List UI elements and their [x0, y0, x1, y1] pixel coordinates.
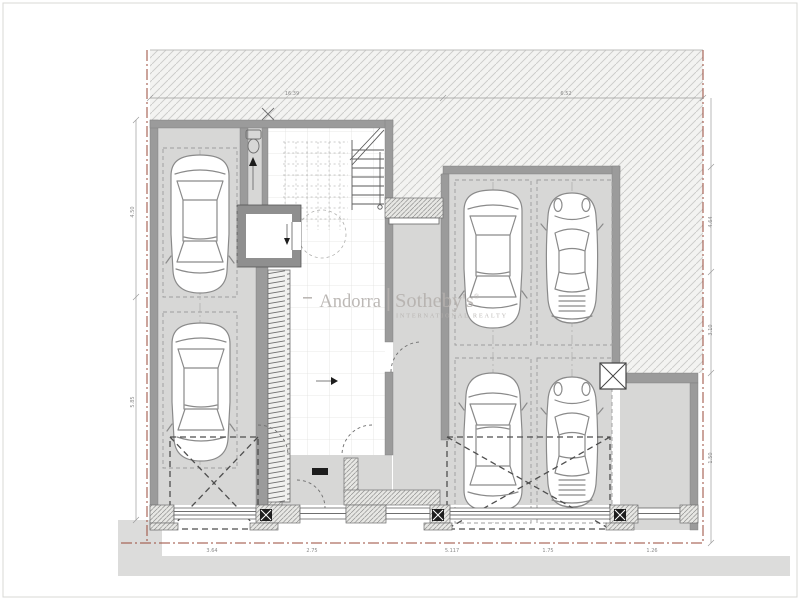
- watermark-tagline: INTERNATIONAL REALTY: [396, 313, 508, 320]
- car-4-sports: [541, 193, 603, 323]
- dimension-label: 16.39: [285, 91, 299, 97]
- car-5-sedan: [459, 373, 527, 511]
- dimension-label: 1.50: [708, 452, 714, 463]
- dimension-label: 6.52: [560, 91, 571, 97]
- dimension-label: 3.10: [708, 324, 714, 335]
- dimension-label: 4.50: [130, 206, 136, 217]
- floor-plan-page: 16.396.523.642.755.1171.751.264.505.854.…: [0, 0, 800, 600]
- dimension-label: 5.85: [130, 396, 136, 407]
- ramp-strip: [268, 270, 290, 502]
- watermark-separator: [388, 288, 390, 311]
- car-1-sedan: [166, 155, 234, 293]
- floor-plan-drawing: 16.396.523.642.755.1171.751.264.505.854.…: [0, 0, 800, 600]
- dimension-label: 5.117: [445, 548, 459, 554]
- dimension-label: 3.64: [206, 548, 217, 554]
- insulated-wall-window: [385, 198, 443, 218]
- dimension-label: 4.64: [708, 216, 714, 227]
- watermark-name: Sotheby's: [395, 290, 474, 312]
- dimension-label: 2.75: [306, 548, 317, 554]
- shaft-x-square: [600, 363, 626, 389]
- elevator: [237, 205, 301, 267]
- entry-door-leaf: [312, 468, 328, 475]
- bottom-facade: [150, 505, 698, 530]
- watermark-registered: ®: [474, 293, 480, 301]
- vestibule-wall-right: [344, 458, 358, 492]
- dimension-label: 1.75: [542, 548, 553, 554]
- car-2-sedan: [167, 323, 235, 461]
- dimension-label: 1.26: [646, 548, 657, 554]
- car-6-sports: [541, 377, 603, 507]
- watermark-brand: Andorra: [319, 292, 381, 312]
- svg-text:Sotheby's®: Sotheby's®: [395, 290, 480, 312]
